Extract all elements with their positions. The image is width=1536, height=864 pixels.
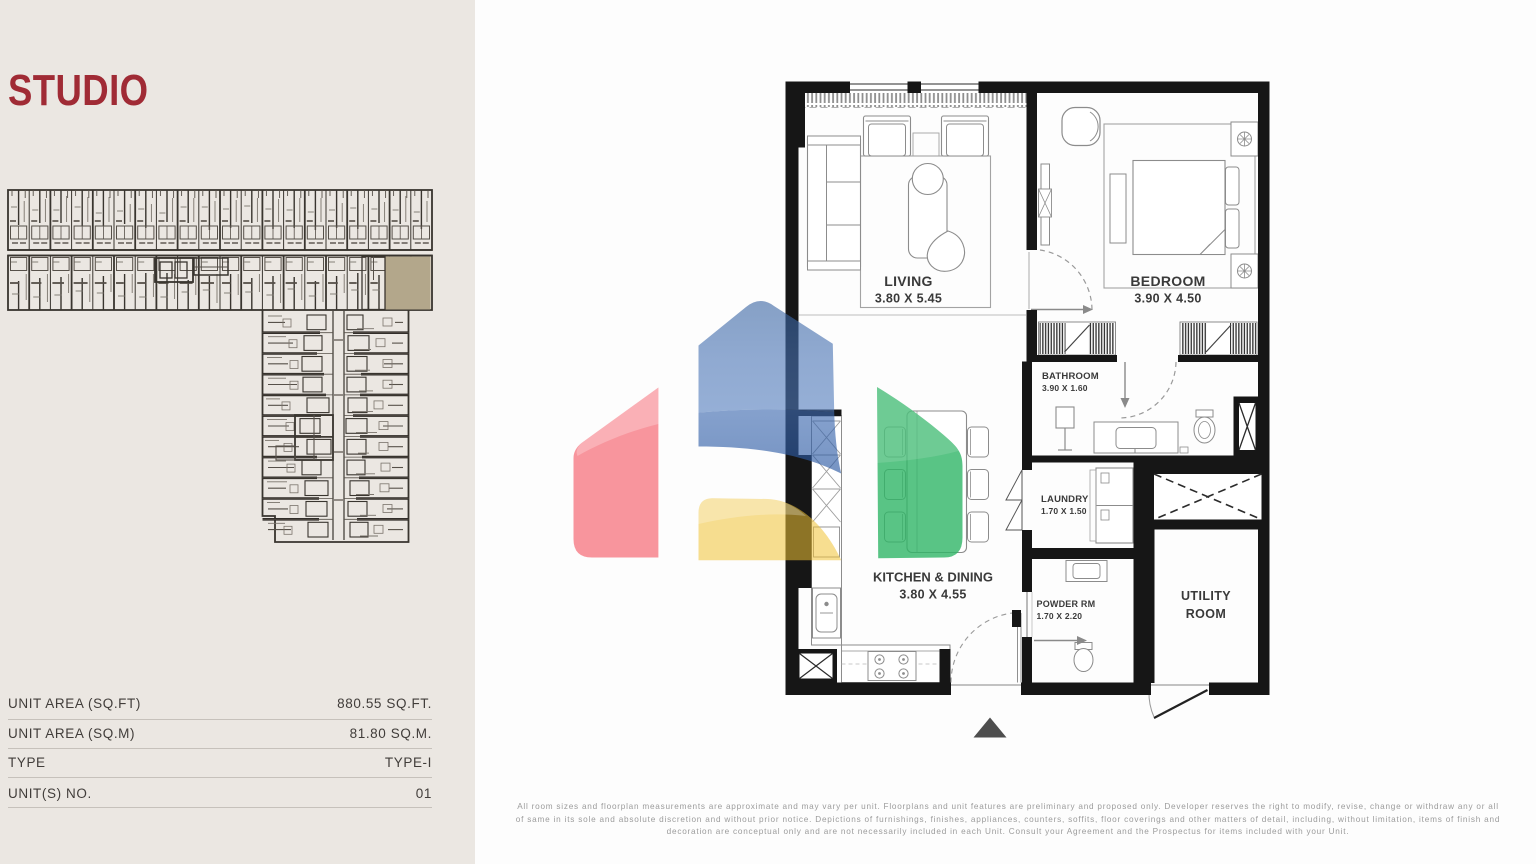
svg-text:1.70 X 1.50: 1.70 X 1.50 [1041,506,1087,516]
svg-text:BATHROOM: BATHROOM [1042,371,1099,382]
svg-text:1.70 X 2.20: 1.70 X 2.20 [1037,611,1083,621]
svg-text:KITCHEN & DINING: KITCHEN & DINING [873,570,993,585]
svg-text:LAUNDRY: LAUNDRY [1041,494,1089,505]
svg-text:UTILITY: UTILITY [1181,589,1231,603]
svg-text:3.90 X 4.50: 3.90 X 4.50 [1134,292,1201,306]
svg-text:3.90 X 1.60: 3.90 X 1.60 [1042,383,1088,393]
svg-text:3.80 X 5.45: 3.80 X 5.45 [875,292,942,306]
svg-text:POWDER RM: POWDER RM [1037,599,1096,609]
svg-text:BEDROOM: BEDROOM [1130,273,1205,289]
svg-text:ROOM: ROOM [1186,607,1227,621]
svg-text:LIVING: LIVING [884,273,932,289]
svg-text:3.80 X 4.55: 3.80 X 4.55 [899,588,966,602]
